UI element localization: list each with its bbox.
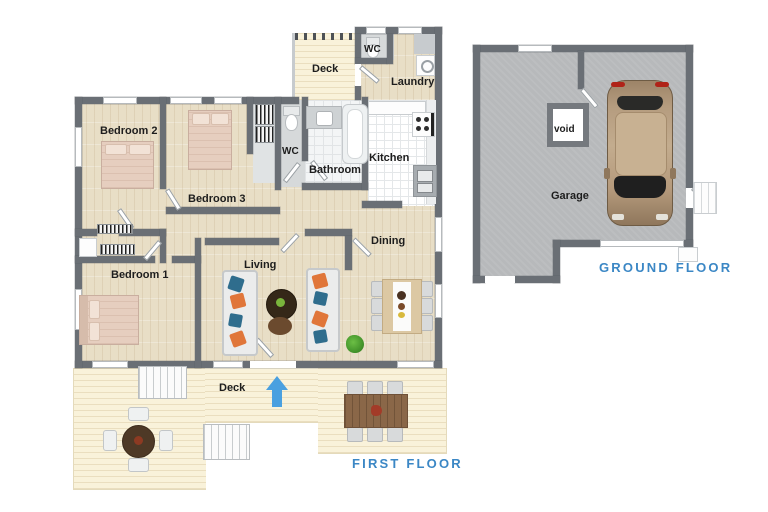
wall xyxy=(578,51,584,89)
garage-floor xyxy=(479,241,554,277)
window xyxy=(518,45,552,52)
wall xyxy=(473,45,480,283)
ground-floor-title: GROUND FLOOR xyxy=(599,260,732,275)
exterior-step xyxy=(693,182,717,214)
floorplan-canvas: Bedroom 2 Bedroom 3 Bedroom 1 Living Din… xyxy=(0,0,768,512)
ground-floor-plan: Garage void GROUND FLOOR xyxy=(0,0,768,512)
wall xyxy=(515,276,560,283)
wall xyxy=(473,276,485,283)
door-opening xyxy=(485,276,515,283)
car-icon xyxy=(607,80,673,226)
garage-door-opening xyxy=(600,240,684,247)
wall xyxy=(686,45,693,188)
wall xyxy=(684,240,693,247)
room-label-void: void xyxy=(554,124,575,135)
wall xyxy=(553,240,600,247)
room-label-garage: Garage xyxy=(551,190,589,202)
